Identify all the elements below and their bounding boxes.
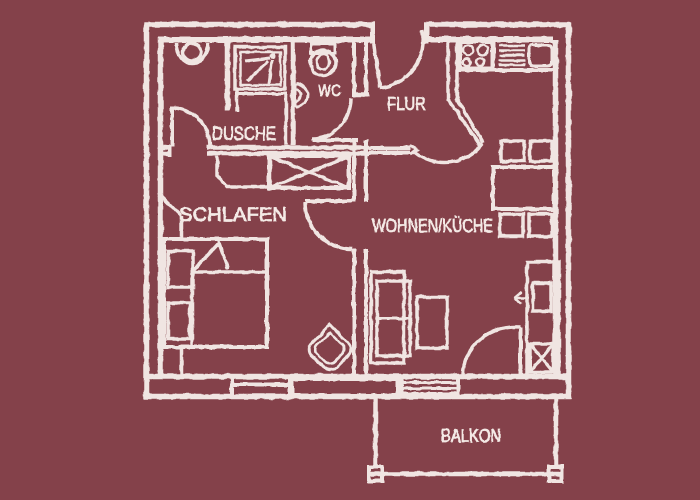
svg-text:FLUR: FLUR bbox=[387, 94, 426, 114]
svg-text:WC: WC bbox=[318, 81, 341, 100]
svg-text:SCHLAFEN: SCHLAFEN bbox=[179, 205, 287, 226]
svg-text:WOHNEN/KÜCHE: WOHNEN/KÜCHE bbox=[372, 216, 493, 236]
svg-text:BALKON: BALKON bbox=[441, 426, 501, 446]
svg-text:DUSCHE: DUSCHE bbox=[212, 124, 276, 145]
